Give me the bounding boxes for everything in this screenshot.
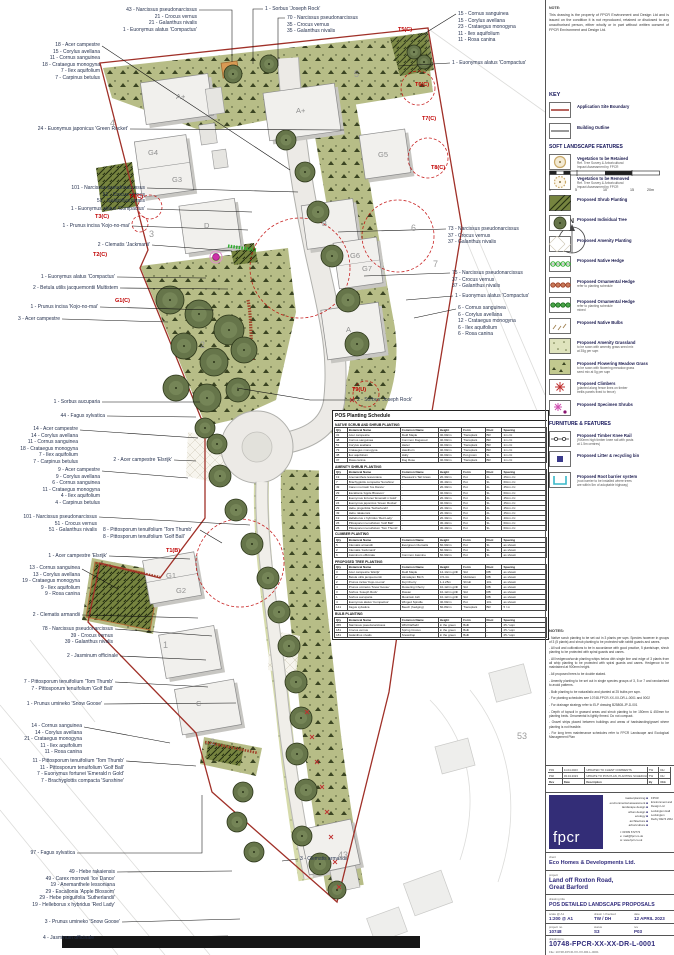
key-item: Proposed Litter & recycling bin [549,451,671,467]
table-row: 3Sorbus 'Joseph Rock'Rowan10-12cm girthS… [335,590,547,595]
table-row: 3Acer campestre 'Elsrijk'Field Maple12-1… [335,570,547,575]
key-item-subtext: mixed [577,308,635,312]
vegrem-swatch [549,174,571,190]
table-row: 29Hebe pinguifolia 'Sutherlandii'-20-30c… [335,505,547,510]
kneerail-swatch [549,431,571,447]
schedule-cell: Pot [462,553,485,558]
key-item-label: Proposed Ornamental Hedge [577,279,635,284]
schedule-cell: 10-12cm girth [438,595,461,600]
table-row: 7Brachyglottis compacta 'Sunshine'-30-40… [335,480,547,485]
note-item: - For planting schedules see 10748-FPCR-… [549,696,669,700]
key-item-label: Proposed Flowering Meadow Grass [577,361,648,366]
copyright-note: NOTE: This drawing is the property of FP… [549,6,669,32]
schedule-section-table: QtyBotanical NameCommon NameHeightFormRo… [334,537,547,558]
revision-row: RevDateDescriptionByChk [548,779,671,785]
leader-line [77,795,202,853]
table-row: 141Fagus sylvaticaBeech (hedging)60-80cm… [335,605,547,610]
key-item-label: Vegetation to be Retained [577,156,628,161]
key-item-subtext: Ref. Tree Survey & Arboricultural [577,161,628,165]
drawing-sheet: 43 - Narcissus pseudonarcissus21 - Crocu… [0,0,674,955]
schedule-cell: 3L [485,553,502,558]
key-item-subtext: Impact Assessment by FPCR [577,185,629,189]
schedule-cell: 10-12cm girth [438,590,461,595]
schedule-cell: Transplant [462,605,485,610]
key-item-subtext: trellis panels fixed to fence) [577,390,628,394]
table-row: 365Narcissus pseudonarcissusWild Daffodi… [335,622,547,627]
vegret-swatch [549,154,571,170]
table-row: 2Prunus incisa 'Kojo-no-mai'Fuji Cherry1… [335,580,547,585]
schedule-cell: Pot [462,525,485,530]
schedule-section-table: QtyBotanical NameCommon NameHeightFormRo… [334,617,547,638]
key-item: Proposed Climbers(planted along fence li… [549,379,671,395]
schedule-cell: 3L [485,525,502,530]
note-text: This drawing is the property of FPCR Env… [549,13,669,32]
note-item: - For drainage strategy refer to ELP dra… [549,703,669,707]
bin-swatch [549,451,571,467]
leader-line [406,296,453,300]
schedule-cell: as shown [502,553,547,558]
table-row: 4Euonymus alatus 'Compactus'Winged Spind… [335,600,547,605]
boundary-swatch [549,102,571,118]
date-value: 12 APRIL 2023 [634,916,665,921]
ohedge-red-swatch [549,277,571,293]
drawing-number: 10748-FPCR-XX-XX-DR-L-0001 [549,941,655,948]
schedule-cell: Euonymus japonicus 'Green Rocket' [347,500,400,505]
leader-line [102,471,188,478]
climber-swatch [549,379,571,395]
key-item-label: Application Site Boundary [577,104,629,109]
key-item: Proposed Shrub Planting [549,195,671,211]
key-item: Proposed Root barrier system(root barrie… [549,472,671,488]
key-item-label: Building Outline [577,125,609,130]
notes-title: NOTES: [549,628,669,633]
drawing-title: POS DETAILED LANDSCAPE PROPOSALS [549,902,655,908]
rootbar-swatch [549,472,571,488]
key-item-label: Proposed Root barrier system [577,474,637,479]
key-title: KEY [549,92,671,98]
company-contact: t: 01509 672772e: mail@fpcr.co.ukw: www.… [620,830,672,843]
notes-block: NOTES: - Native scrub planting to be set… [549,628,669,739]
key-item-label: Proposed Litter & recycling bin [577,453,639,458]
key-item-label: Proposed Shrub Planting [577,197,627,202]
outline-swatch [549,123,571,139]
schedule-cell: 6 [335,553,348,558]
status-value: S3 [594,929,600,934]
key-item-subtext: (root barrier to be installed where tree… [577,479,637,483]
schedule-section-table: QtyBotanical NameCommon NameHeightFormRo… [334,469,547,531]
schedule-section-table: QtyBotanical NameCommon NameHeightFormRo… [334,427,547,463]
schedule-cell: Brachyglottis compacta 'Sunshine' [347,480,400,485]
note-item: - Depth of topsoil in grassed areas and … [549,710,669,718]
company-address: FPCR Environment and Design LtdLockingto… [651,796,673,821]
table-row: 29Escallonia 'Apple Blossom'-40-60cmPot3… [335,490,547,495]
table-row: 2Clematis 'Jackmanii'-60-90cmPot3Las sho… [335,547,547,552]
table-row: 24Euonymus japonicus 'Green Rocket'-40-6… [335,500,547,505]
schedule-cell: Helleborus x hybridus 'Red Lady' [347,515,400,520]
key-item-label: Proposed Native Bulbs [577,320,623,325]
ohedge-green-swatch [549,297,571,313]
leader-line [122,919,240,922]
key-item: Proposed Flowering Meadow Grassto be sow… [549,359,671,375]
schedule-cell: in the green [438,632,461,637]
key-group-header: SOFT LANDSCAPE FEATURES [549,144,671,150]
key-item-label: Proposed Amenity Planting [577,238,632,243]
key-item: Vegetation to be RetainedRef. Tree Surve… [549,154,671,170]
key-legend: KEY Application Site BoundaryBuilding Ou… [549,92,671,492]
services-list: masterplanning ■environmental assessment… [606,796,648,828]
address-line: FPCR Environment and Design Ltd [651,796,673,809]
table-row: 181Galanthus nivalisSnowdropin the green… [335,632,547,637]
key-item: Proposed Amenity Grasslandto be sown wit… [549,338,671,354]
contact-line: w: www.fpcr.co.uk [620,838,672,842]
table-row: 26Pittosporum tenuifolium 'Golf Ball'-30… [335,520,547,525]
note-item: - All soil and cultivations to be in acc… [549,646,669,654]
leader-line [99,517,250,525]
table-row: 19Anemanthele lessonianaPheasant's Tail … [335,475,547,480]
leader-line [80,430,198,438]
key-item: Proposed Specimen Shrubs [549,400,671,416]
planting-schedule-table: POS Planting Schedule NATIVE SCRUB AND S… [332,410,549,640]
schedule-cell: 12-14cm girth [438,570,461,575]
key-item-subtext: at 1.5m centres) [577,442,633,446]
drawn-value: TW / DH [594,916,611,921]
key-item: Proposed Amenity Planting [549,236,671,252]
key-item-label: Proposed Specimen Shrubs [577,402,633,407]
table-row: 2Betula utilis jacquemontiiHimalayan Bir… [335,575,547,580]
key-item: Proposed Ornamental Hedgerefer to planti… [549,277,671,293]
shrub-swatch [549,195,571,211]
note-item: - All proposed trees to be double staked… [549,672,669,676]
grass-swatch [549,338,571,354]
note-item: - Bulb planting to be naturalistic and p… [549,690,669,694]
schedule-cell: Dog Rose [400,458,438,463]
leader-line [107,416,196,417]
key-item-subtext: are within 5m of adoptable highway) [577,483,637,487]
logo-text: fpcr [553,829,580,846]
table-row: 5Clematis armandiiEvergreen Clematis60-9… [335,542,547,547]
schedule-section-table: QtyBotanical NameCommon NameHeightFormRo… [334,564,547,610]
bulbs-swatch [549,318,571,334]
key-item: Proposed Timber Knee Rail(900mm high tim… [549,431,671,447]
note-item: - Native scrub planting to be set out in… [549,636,669,644]
amenity-swatch [549,236,571,252]
schedule-cell: Pittosporum tenuifolium 'Golf Ball' [347,520,400,525]
table-row: 37Rosa caninaDog Rose40-60cmTransplantBR… [335,458,547,463]
fpcr-logo: fpcr [549,795,603,849]
drawing-title-label: drawing title [549,897,565,901]
key-item: Application Site Boundary [549,102,671,118]
key-item: Building Outline [549,123,671,139]
schedule-cell: Pittosporum tenuifolium 'Tom Thumb' [347,525,400,530]
table-row: 7Euonymus fortunei 'Emerald n Gold'-20-3… [335,495,547,500]
key-group-header: FURNITURE & FEATURES [549,421,671,427]
schedule-cell: 40-60cm [438,458,461,463]
schedule-cell: 37 [335,458,348,463]
leader-line [62,319,168,322]
specimen-swatch [549,400,571,416]
meadow-swatch [549,359,571,375]
schedule-cell: Bulb [462,632,485,637]
schedule-cell: Common Jasmine [400,553,438,558]
table-row: 49Carex morrowii 'Ice Dance'-20-30cmPot2… [335,485,547,490]
schedule-cell: BR [485,458,502,463]
note-title: NOTE: [549,6,669,10]
schedule-cell: 141 [335,605,348,610]
schedule-cell: 60cm c/c [502,525,547,530]
key-item-subtext: seed mix at 5g per sqm [577,370,648,374]
schedule-cell: Fagus sylvatica [347,605,400,610]
key-item-subtext: Impact Assessment by FPCR [577,165,628,169]
sheet-edge-bar [62,936,420,948]
note-item: - Gravel strips placed between buildings… [549,720,669,728]
key-item: Proposed Native Hedge [549,256,671,272]
leader-line [414,14,456,40]
table-row: 49Hebe rakaiensis-20-30cmPot2L45cm c/c [335,510,547,515]
key-item-label: Proposed Native Hedge [577,258,624,263]
schedule-cell: 60-90cm [438,553,461,558]
key-item: Proposed Native Bulbs [549,318,671,334]
file-footer: File: 10748-FPCR-XX-XX-DR-L-0001 [549,950,599,954]
schedule-cell: Beech (hedging) [400,605,438,610]
leader-line [414,309,456,318]
schedule-cell: 1m c/c [502,458,547,463]
schedule-cell: 60-80cm [438,605,461,610]
table-row: 19Helleborus x hybridus 'Red Lady'-20-30… [335,515,547,520]
leader-line [126,761,196,766]
key-item: Proposed Ornamental Hedgerefer to planti… [549,297,671,313]
nhedge-swatch [549,256,571,272]
key-item-label: Proposed Individual Tree [577,217,627,222]
table-row: 26Pittosporum tenuifolium 'Tom Thumb'-30… [335,525,547,530]
leader-line [199,10,232,62]
leader-line [117,871,232,872]
project-line-2: Great Barford [549,885,588,891]
project-line-1: Land off Roxton Road, [549,878,613,884]
schedule-title: POS Planting Schedule [334,412,547,421]
client-name: Eco Homes & Developments Ltd. [549,860,635,866]
schedule-cell: 181 [335,632,348,637]
schedule-cell: Jasminum officinale [347,553,400,558]
panel-divider [545,0,546,955]
address-line: Derby DE74 2RH [651,817,673,821]
schedule-cell: Snowdrop [400,632,438,637]
key-item: Proposed Individual Tree [549,215,671,231]
leader-line [115,682,208,687]
service-line: arboriculture ■ [606,823,648,828]
schedule-cell: Rosa canina [347,458,400,463]
schedule-cell: - [485,632,502,637]
key-item: Vegetation to be RemovedRef. Tree Survey… [549,174,671,190]
leader-line [200,530,222,543]
key-item-subtext: (900mm high timber knee rail with posts [577,438,633,442]
leader-line [84,727,170,743]
tree-swatch [549,215,571,231]
table-row: 4Prunus umineko 'Snow Goose'Flowering Ch… [335,585,547,590]
revision-table: P0311.04.2023UPDATED TO CLIENT COMMENTST… [548,767,671,785]
key-item-subtext: at 35g per sqm [577,349,636,353]
schedule-cell: Euonymus fortunei 'Emerald n Gold' [347,495,400,500]
note-item: - All hedgerow/scrub planting whips belo… [549,657,669,669]
client-label: client [549,855,556,859]
schedule-cell: Galanthus nivalis [347,632,400,637]
rev-value: P03 [634,929,642,934]
table-row: 6Jasminum officinaleCommon Jasmine60-90c… [335,553,547,558]
key-item-label: Proposed Timber Knee Rail [577,433,633,438]
schedule-cell: 30-40cm [438,525,461,530]
schedule-cell: 10-12cm girth [438,585,461,590]
schedule-cell: - [400,525,438,530]
project-label: project [549,873,558,877]
schedule-cell: 26 [335,525,348,530]
schedule-cell: BR [485,605,502,610]
projno-value: 10748 [549,929,562,934]
table-row: 181Crocus vernusSpring Crocusin the gree… [335,627,547,632]
key-item-subtext: refer to planting schedule [577,284,635,288]
scale-value: 1:200 @ A1 [549,916,573,921]
table-row: 1Sorbus aucupariaMountain Ash10-12cm gir… [335,595,547,600]
note-item: - Amenity planting to be set out in sing… [549,679,669,687]
schedule-cell: Transplant [462,458,485,463]
schedule-cell: 5 / m [502,605,547,610]
note-item: - For long term maintenance schedules re… [549,731,669,739]
schedule-cell: 25 / sqm [502,632,547,637]
